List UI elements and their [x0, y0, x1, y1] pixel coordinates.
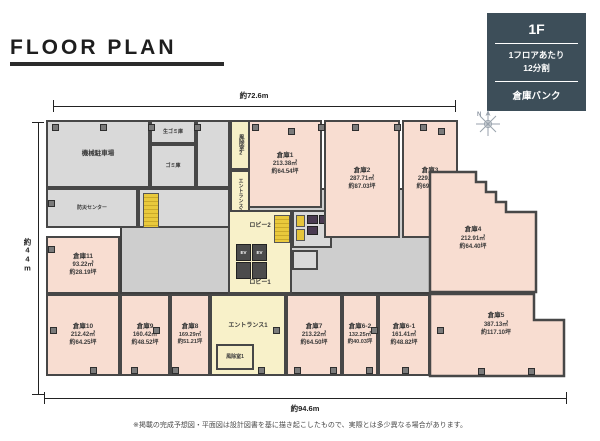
- room-warehouse-11: 倉庫1193.22㎡約28.19坪: [46, 236, 120, 294]
- legend-brand: 倉庫バンク: [492, 82, 581, 104]
- column: [330, 367, 337, 374]
- dim-tick: [566, 392, 567, 404]
- room-service: [138, 188, 230, 228]
- stairs: [143, 193, 159, 228]
- column: [258, 367, 265, 374]
- legend-box: 1F 1フロアあたり 12分割 倉庫バンク: [487, 13, 586, 111]
- column: [438, 128, 445, 135]
- column: [100, 124, 107, 131]
- elevator-icon: EV: [236, 244, 251, 261]
- elevator-icon: [252, 262, 267, 279]
- room-lobby: ロビー2 EV EV ロビー1: [228, 210, 292, 294]
- room-machine-parking: 機械駐車場: [46, 120, 150, 188]
- dim-tick: [455, 100, 456, 112]
- dim-tick: [32, 122, 44, 123]
- column: [394, 124, 401, 131]
- floor-plan-page: FLOOR PLAN 1F 1フロアあたり 12分割 倉庫バンク N 約72.6…: [0, 0, 600, 441]
- column: [148, 124, 155, 131]
- restroom-fixture: [307, 226, 318, 235]
- room-entrance1: エントランス1 風除室1: [210, 294, 286, 376]
- room-warehouse-7: 倉庫7213.22㎡約64.50坪: [286, 294, 342, 376]
- legend-division: 1フロアあたり 12分割: [492, 44, 581, 81]
- restroom-fixture: [307, 215, 318, 224]
- title-underline: [10, 62, 224, 66]
- room-windbreak2: 風除室2: [230, 120, 250, 170]
- room-warehouse-3: 倉庫3229.99㎡約69.57坪: [402, 120, 458, 238]
- column: [528, 368, 535, 375]
- room-warehouse-10: 倉庫10212.42㎡約64.25坪: [46, 294, 120, 376]
- column: [153, 327, 160, 334]
- dimension-line-bottom: [44, 398, 566, 399]
- column: [48, 200, 55, 207]
- column: [366, 367, 373, 374]
- column: [131, 367, 138, 374]
- column: [352, 124, 359, 131]
- room-warehouse-4: 倉庫4212.91㎡約64.40坪: [438, 226, 508, 251]
- dim-tick: [32, 394, 44, 395]
- column: [194, 124, 201, 131]
- column: [420, 124, 427, 131]
- dimension-bottom-label: 約94.6m: [44, 403, 566, 414]
- column: [294, 367, 301, 374]
- room-warehouse-5: 倉庫5387.13㎡約117.10坪: [458, 312, 534, 337]
- column: [318, 124, 325, 131]
- stairs: [274, 215, 290, 243]
- column: [273, 327, 280, 334]
- column: [48, 246, 55, 253]
- column: [478, 368, 485, 375]
- restroom-fixture: [296, 215, 305, 227]
- room-warehouse-6-1: 倉庫6-1161.41㎡約48.82坪: [378, 294, 430, 376]
- compass-icon: N: [472, 108, 504, 140]
- elevator-icon: EV: [252, 244, 267, 261]
- room-raw-garbage: 生ゴミ庫: [150, 120, 196, 144]
- room-garbage: ゴミ庫: [150, 144, 196, 188]
- room-warehouse-6-2: 倉庫6-2132.25㎡約40.03坪: [342, 294, 378, 376]
- room-small-service: [292, 250, 318, 270]
- column: [371, 327, 378, 334]
- room-warehouse-8: 倉庫8169.29㎡約51.21坪: [170, 294, 210, 376]
- restroom-fixture: [296, 229, 305, 241]
- disclaimer-note: ※掲載の完成予想図・平面図は設計図書を基に描き起こしたもので、実際とは多少異なる…: [133, 420, 467, 430]
- column: [252, 124, 259, 131]
- column: [437, 327, 444, 334]
- column: [402, 367, 409, 374]
- column: [172, 367, 179, 374]
- column: [50, 327, 57, 334]
- room-utility: [196, 120, 230, 188]
- dimension-line-left: [38, 122, 39, 394]
- svg-text:N: N: [477, 112, 481, 118]
- dimension-left-label: 約44m: [22, 238, 33, 273]
- room-warehouse-1: 倉庫1213.38㎡約64.54坪: [248, 120, 322, 208]
- column: [288, 128, 295, 135]
- room-windbreak1: 風除室1: [216, 344, 254, 370]
- elevator-icon: [236, 262, 251, 279]
- column: [52, 124, 59, 131]
- dimension-line-top: [53, 106, 455, 107]
- legend-floor: 1F: [492, 19, 581, 43]
- page-title: FLOOR PLAN: [10, 36, 177, 60]
- room-warehouse-2: 倉庫2287.71㎡約87.03坪: [324, 120, 400, 238]
- room-disaster-center: 防災センター: [46, 188, 138, 228]
- column: [90, 367, 97, 374]
- dim-tick: [53, 100, 54, 112]
- lobby1-label: ロビー1: [230, 279, 290, 287]
- dimension-top-label: 約72.6m: [53, 90, 455, 101]
- room-warehouse-9: 倉庫9160.42㎡約48.52坪: [120, 294, 170, 376]
